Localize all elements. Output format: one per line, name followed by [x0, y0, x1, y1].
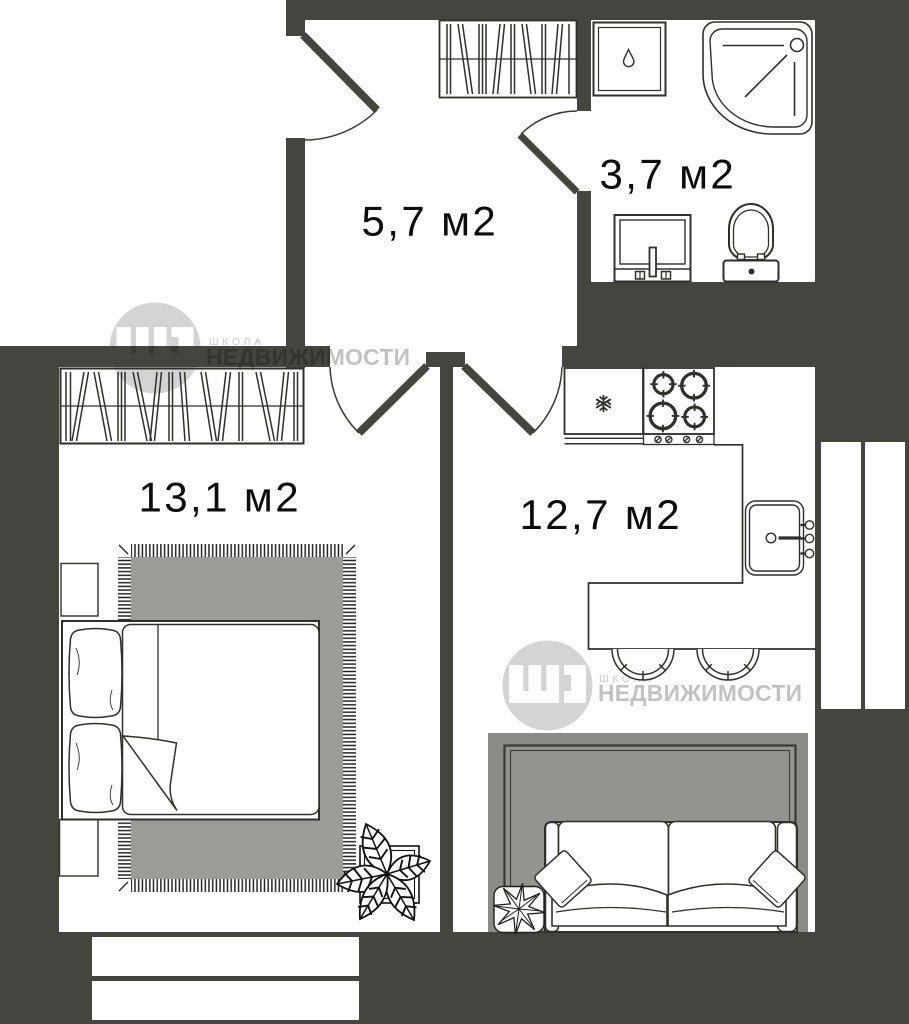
svg-text:НЕДВИЖИМОСТИ: НЕДВИЖИМОСТИ — [598, 680, 802, 706]
svg-text:3,7 м2: 3,7 м2 — [600, 151, 737, 198]
svg-text:5,7 м2: 5,7 м2 — [362, 198, 499, 245]
svg-text:12,7 м2: 12,7 м2 — [520, 491, 682, 538]
svg-text:НЕДВИЖИМОСТИ: НЕДВИЖИМОСТИ — [206, 344, 410, 370]
svg-text:13,1 м2: 13,1 м2 — [139, 474, 301, 521]
